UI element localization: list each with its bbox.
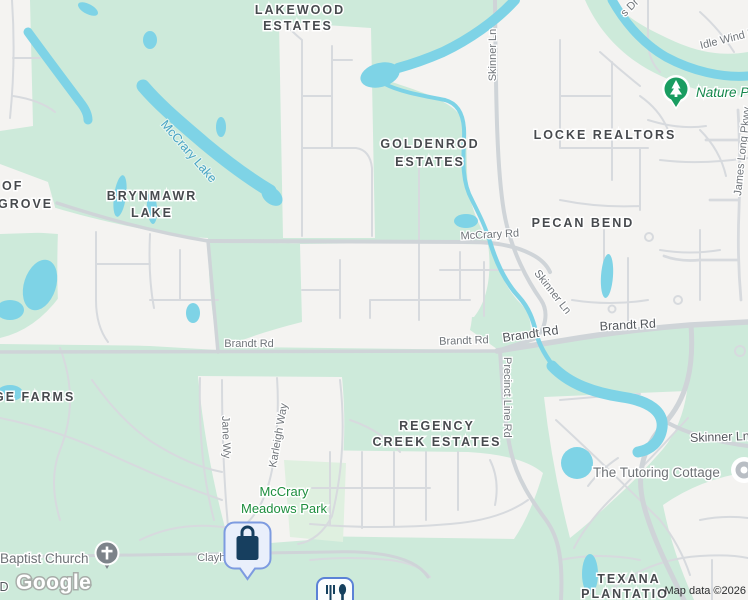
brandt-rd-west-road: [0, 351, 497, 352]
church-cross-vertical: [106, 547, 109, 560]
skinner-ln-label: Skinner Ln: [487, 29, 499, 82]
brandt-rd-label: Brandt Rd: [224, 338, 274, 350]
skinner-ln-label: Skinner Ln: [690, 429, 748, 445]
pocket-lakewood: [279, 22, 375, 238]
grove-label-partial: OF: [2, 179, 23, 193]
farms-label-partial: GE FARMS: [0, 390, 75, 404]
shopping-bag-icon[interactable]: [237, 536, 259, 560]
grove-label-partial: GROVE: [0, 197, 53, 211]
brynmawr-lake-label: LAKE: [131, 206, 173, 220]
goldenrod-estates-label: GOLDENROD: [380, 137, 479, 151]
texana-plantation-label: PLANTATIO: [581, 587, 669, 600]
nature-preserve-label[interactable]: Nature Pr: [696, 85, 748, 100]
pecan-bend-label: PECAN BEND: [532, 216, 635, 230]
pond: [454, 214, 478, 228]
regency-creek-estates-label: REGENCY: [399, 419, 475, 433]
pocket-goldenrod-south: [302, 244, 489, 323]
brandt-rd-label: Brandt Rd: [439, 334, 489, 348]
church-cross-horizontal: [102, 550, 113, 553]
pocket-brynmawr: [57, 230, 218, 350]
d-label-partial: D: [0, 580, 9, 594]
regency-creek-estates-label: CREEK ESTATES: [372, 435, 501, 449]
google-logo[interactable]: Google: [16, 571, 91, 594]
locke-realtors-label: LOCKE REALTORS: [534, 128, 677, 142]
lakewood-estates-label: ESTATES: [263, 19, 333, 33]
pond: [216, 117, 226, 137]
map-svg[interactable]: McCrary Lake LAKEWOOD ESTATES GOLDENROD …: [0, 0, 748, 600]
brynmawr-lake-label: BRYNMAWR: [107, 189, 198, 203]
restaurant-pin[interactable]: [317, 578, 353, 600]
mccrary-meadows-park-label[interactable]: McCrary: [259, 484, 309, 499]
map-data-attribution: Map data ©2026: [665, 585, 747, 597]
baptist-church-label[interactable]: Baptist Church: [0, 551, 89, 566]
mccrary-meadows-park-label[interactable]: Meadows Park: [241, 501, 327, 516]
jane-wy-label: Jane Wy: [219, 416, 233, 460]
goldenrod-estates-label: ESTATES: [395, 155, 465, 169]
pond: [186, 303, 200, 323]
pond: [143, 31, 157, 49]
lakewood-estates-label: LAKEWOOD: [255, 3, 345, 17]
pond-tutoring: [561, 447, 593, 479]
precinct-line-rd-label: Precinct Line Rd: [501, 357, 513, 438]
map-canvas[interactable]: McCrary Lake LAKEWOOD ESTATES GOLDENROD …: [0, 0, 748, 600]
tutoring-cottage-label[interactable]: The Tutoring Cottage: [593, 465, 720, 480]
brandt-rd-label: Brandt Rd: [599, 317, 656, 334]
spoon-glyph: [339, 584, 346, 595]
texana-plantation-label: TEXANA: [597, 572, 660, 586]
poi-pin-dot: [741, 467, 748, 474]
pocket-topleft: [0, 0, 33, 131]
green-northwest: [0, 0, 520, 244]
